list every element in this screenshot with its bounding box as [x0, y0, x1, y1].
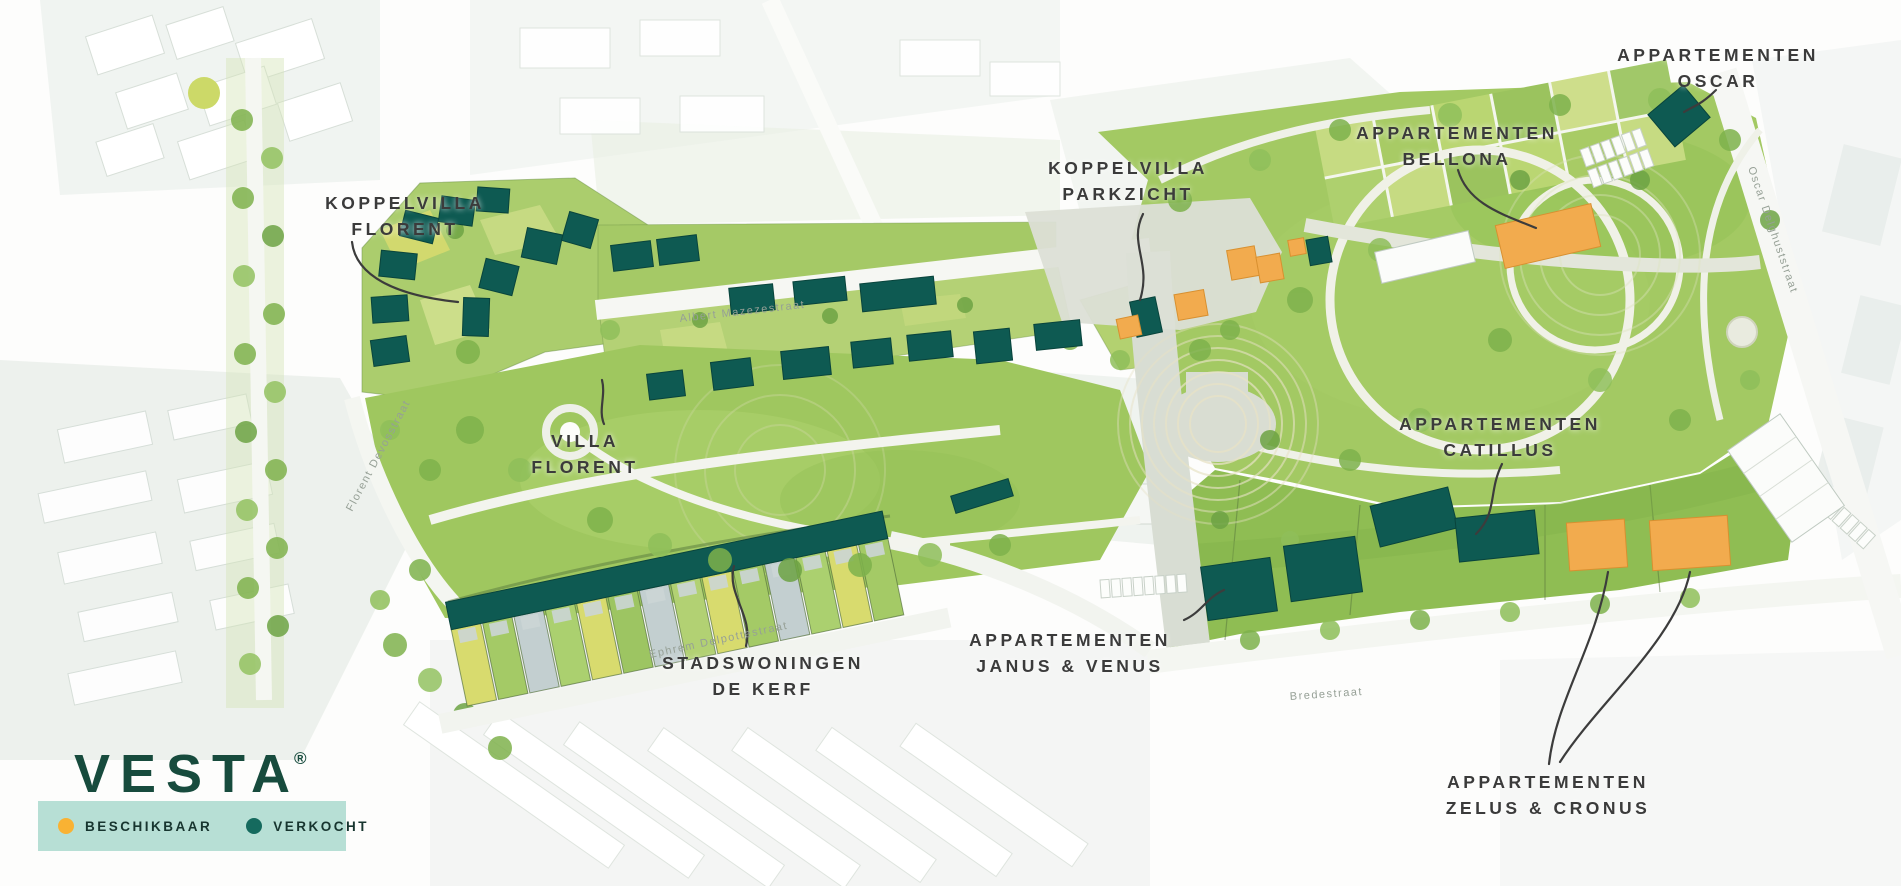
project-label-line: APPARTEMENTEN	[920, 627, 1220, 653]
project-label-appartementen-bellona[interactable]: APPARTEMENTEN BELLONA	[1307, 120, 1607, 172]
project-label-appartementen-catillus[interactable]: APPARTEMENTEN CATILLUS	[1350, 411, 1650, 463]
project-label-line: CATILLUS	[1350, 437, 1650, 463]
project-label-line: JANUS & VENUS	[920, 653, 1220, 679]
project-label-koppelvilla-florent[interactable]: KOPPELVILLA FLORENT	[255, 190, 555, 242]
project-label-line: DE KERF	[613, 676, 913, 702]
project-label-line: KOPPELVILLA	[255, 190, 555, 216]
masterplan-canvas: Albert Mazezestraat Florent Devosstraat …	[0, 0, 1901, 886]
legend-label-sold: VERKOCHT	[273, 819, 369, 834]
legend-item-sold: VERKOCHT	[246, 818, 369, 834]
project-label-villa-florent[interactable]: VILLA FLORENT	[435, 428, 735, 480]
project-label-line: VILLA	[435, 428, 735, 454]
legend: BESCHIKBAAR VERKOCHT	[38, 801, 346, 851]
project-label-line: FLORENT	[435, 454, 735, 480]
vesta-logo-text: VESTA	[74, 744, 300, 804]
project-label-koppelvilla-parkzicht[interactable]: KOPPELVILLA PARKZICHT	[978, 155, 1278, 207]
project-label-line: APPARTEMENTEN	[1350, 411, 1650, 437]
available-dot-icon	[58, 818, 74, 834]
registered-mark: ®	[294, 749, 307, 768]
project-label-line: BELLONA	[1307, 146, 1607, 172]
project-label-line: ZELUS & CRONUS	[1398, 795, 1698, 821]
project-label-line: APPARTEMENTEN	[1307, 120, 1607, 146]
legend-label-available: BESCHIKBAAR	[85, 819, 212, 834]
project-label-line: APPARTEMENTEN	[1568, 42, 1868, 68]
project-label-line: PARKZICHT	[978, 181, 1278, 207]
project-label-line: STADSWONINGEN	[613, 650, 913, 676]
project-label-stadswoningen-de-kerf[interactable]: STADSWONINGEN DE KERF	[613, 650, 913, 702]
project-label-appartementen-oscar[interactable]: APPARTEMENTEN OSCAR	[1568, 42, 1868, 94]
project-label-line: APPARTEMENTEN	[1398, 769, 1698, 795]
vesta-logo: VESTA®	[74, 730, 307, 803]
project-label-appartementen-zelus-cronus[interactable]: APPARTEMENTEN ZELUS & CRONUS	[1398, 769, 1698, 821]
legend-item-available: BESCHIKBAAR	[58, 818, 212, 834]
project-label-line: OSCAR	[1568, 68, 1868, 94]
street-label: Bredestraat	[1289, 686, 1363, 703]
project-label-line: FLORENT	[255, 216, 555, 242]
project-label-appartementen-janus-venus[interactable]: APPARTEMENTEN JANUS & VENUS	[920, 627, 1220, 679]
project-label-line: KOPPELVILLA	[978, 155, 1278, 181]
sold-dot-icon	[246, 818, 262, 834]
